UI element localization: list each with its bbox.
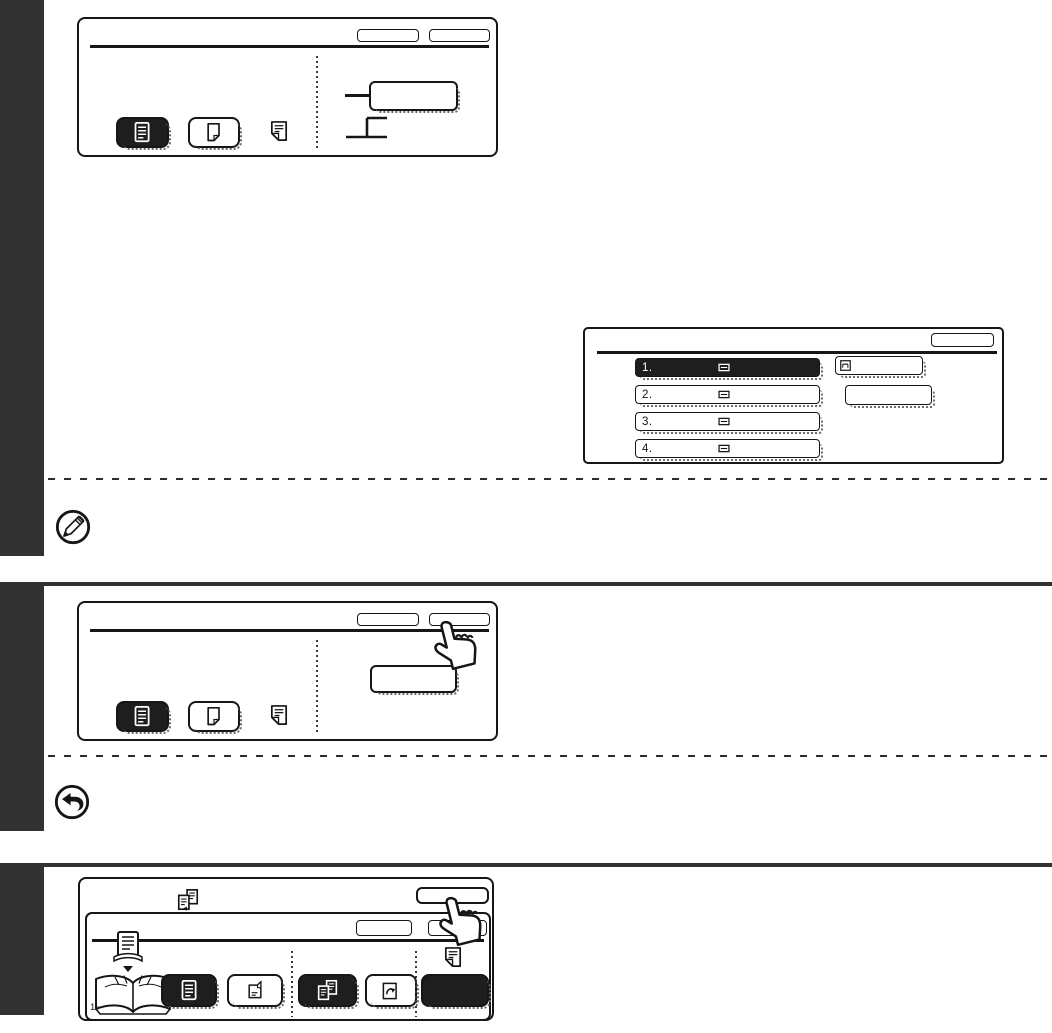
mode-button-document[interactable] xyxy=(116,117,169,148)
book-mode-button-page-insert[interactable] xyxy=(365,974,417,1007)
list-row-2[interactable]: 2. xyxy=(635,385,820,404)
option-button-right[interactable] xyxy=(369,81,458,111)
document-stack-icon xyxy=(108,930,148,974)
step-sidebar-2 xyxy=(0,582,44,831)
hand-feed-icon xyxy=(840,360,851,371)
page-fold-icon xyxy=(245,980,265,1002)
list-screen-panel: 1. 2. 3. 4. xyxy=(583,327,1004,464)
header-button-right[interactable] xyxy=(429,29,490,42)
list-row-1[interactable]: 1. xyxy=(635,358,820,377)
indent-step-mark xyxy=(343,115,393,141)
return-arrow-circle-icon xyxy=(53,783,91,821)
paper-tray-icon xyxy=(718,444,730,453)
document-text-icon xyxy=(132,705,153,728)
page-insert-icon xyxy=(380,980,402,1002)
inner-header-rule xyxy=(92,939,484,942)
list-header-button[interactable] xyxy=(931,333,994,347)
document-text-icon xyxy=(132,121,153,144)
pencil-circle-icon xyxy=(54,508,92,546)
document-text-icon xyxy=(179,979,200,1002)
blank-page-icon xyxy=(204,706,224,728)
book-mode-button-book-copy[interactable] xyxy=(298,974,357,1007)
book-mode-button-program[interactable] xyxy=(421,974,489,1007)
list-row-label: 2. xyxy=(642,389,700,401)
blank-page-icon xyxy=(204,122,224,144)
mode-button-blank-page[interactable] xyxy=(188,117,240,148)
paper-tray-icon xyxy=(718,417,730,426)
list-row-3[interactable]: 3. xyxy=(635,412,820,431)
list-row-label: 4. xyxy=(642,443,700,455)
section-rule-3 xyxy=(0,863,1052,867)
inner-dotted-divider-2 xyxy=(415,951,417,1017)
panel-dotted-divider xyxy=(316,640,318,733)
section-rule-2 xyxy=(0,582,1052,586)
list-action-button-bottom[interactable] xyxy=(845,385,932,405)
folded-document-icon xyxy=(268,704,290,727)
list-action-button-top[interactable] xyxy=(835,356,923,375)
book-mode-button-page-fold[interactable] xyxy=(227,974,283,1007)
book-page-range-label: 1~ xyxy=(90,1002,101,1013)
paper-tray-icon xyxy=(718,363,730,372)
header-button-left[interactable] xyxy=(357,29,419,42)
list-row-label: 1. xyxy=(642,362,700,374)
folded-document-icon xyxy=(268,120,290,143)
mode-button-document[interactable] xyxy=(116,701,169,732)
header-rule xyxy=(90,45,489,48)
touchscreen-panel-1 xyxy=(77,17,498,157)
inner-settings-panel: 1~ xyxy=(85,912,491,1021)
list-row-4[interactable]: 4. xyxy=(635,439,820,458)
step-sidebar-1 xyxy=(0,0,44,556)
step-sidebar-3 xyxy=(0,863,44,1015)
panel-dotted-divider xyxy=(316,56,318,149)
inner-dotted-divider-1 xyxy=(291,951,293,1017)
book-copy-icon xyxy=(176,888,200,912)
list-row-label: 3. xyxy=(642,416,700,428)
list-header-rule xyxy=(597,351,997,354)
inner-header-button-left[interactable] xyxy=(356,920,412,936)
book-copy-icon xyxy=(316,979,339,1002)
section-separator-dashed xyxy=(48,478,1052,480)
section-separator-dashed xyxy=(48,755,1052,757)
mode-button-blank-page[interactable] xyxy=(188,701,240,732)
book-mode-button-document[interactable] xyxy=(161,974,217,1007)
paper-tray-icon xyxy=(718,390,730,399)
header-button-left[interactable] xyxy=(357,613,419,626)
